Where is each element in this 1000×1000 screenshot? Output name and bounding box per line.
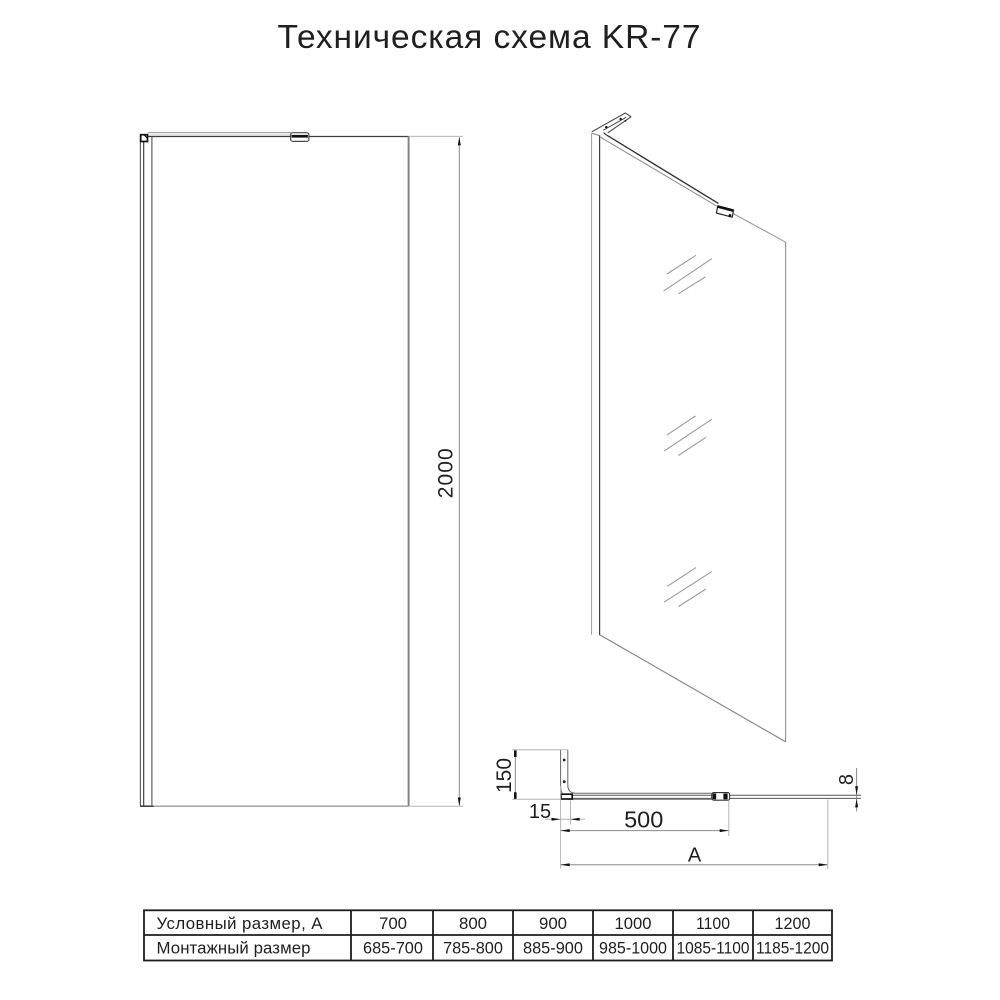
svg-text:785-800: 785-800 [443,939,503,958]
svg-text:A: A [688,845,702,867]
svg-text:500: 500 [624,807,663,833]
svg-text:1200: 1200 [775,914,811,933]
svg-text:1000: 1000 [615,914,652,933]
svg-text:800: 800 [459,914,487,933]
svg-text:685-700: 685-700 [363,939,423,958]
svg-text:150: 150 [493,758,516,793]
svg-text:Условный размер, А: Условный размер, А [157,914,324,933]
svg-text:985-1000: 985-1000 [599,939,667,958]
svg-text:885-900: 885-900 [523,939,583,958]
svg-text:1185-1200: 1185-1200 [756,939,829,958]
svg-text:2000: 2000 [434,448,457,498]
svg-text:900: 900 [539,914,567,933]
svg-text:Техническая схема KR-77: Техническая схема KR-77 [278,19,701,56]
svg-text:1085-1100: 1085-1100 [677,939,750,958]
svg-text:1100: 1100 [696,914,730,933]
svg-text:700: 700 [379,914,407,933]
svg-text:Монтажный размер: Монтажный размер [157,939,311,958]
svg-text:15: 15 [529,801,551,823]
svg-text:8: 8 [836,774,858,785]
